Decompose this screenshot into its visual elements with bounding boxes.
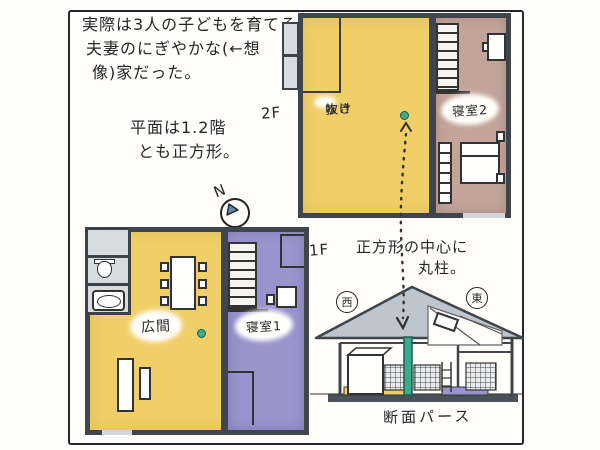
round-column-dot-1f [197, 329, 206, 338]
intro-note-line3: 像)家だった。 [92, 61, 297, 85]
closet-1f [280, 234, 304, 268]
floor-plan-1f: 広間 寝室1 [85, 227, 309, 435]
floor1-label: 1F [308, 238, 330, 262]
lattice-screen [384, 365, 404, 390]
column-pointer-arrow [380, 106, 432, 342]
sketch-page: 実際は3人の子どもを育てる 夫妻のにぎやかな(←想 像)家だった。 平面は1.2… [0, 0, 600, 450]
round-column [404, 337, 412, 395]
dining-chair [160, 262, 169, 272]
dining-chair [160, 279, 169, 289]
stairs-1f [228, 242, 257, 309]
void-label: 吹き 抜け [318, 100, 332, 105]
wall-1f [221, 232, 228, 430]
north-letter: N [211, 181, 228, 202]
floor2-label: 2F [260, 101, 282, 125]
section-caption: 断面パース [383, 405, 473, 429]
side-table-a [496, 131, 505, 142]
side-table-b [496, 173, 505, 184]
bathtub-oval [97, 295, 121, 308]
bathroom-block [85, 227, 131, 315]
bathtub-icon [92, 290, 125, 311]
lattice-screen [414, 365, 440, 390]
bath-divider-2 [88, 283, 128, 286]
stairs-wall-1f [228, 309, 268, 312]
desk-chair-1f [266, 294, 275, 305]
cabinet-top [348, 348, 391, 355]
desk-2f [487, 33, 506, 61]
dining-table [170, 256, 196, 310]
intro-note-line2: 夫妻のにぎやかな(←想 [86, 37, 297, 61]
hall-label: 広間 [133, 313, 178, 339]
north-arrow-icon [220, 198, 250, 228]
plan-shape-note-line2: とも正方形。 [138, 140, 240, 164]
lattice-screen [466, 363, 496, 390]
balcony-2f [282, 22, 299, 90]
door-1f [102, 430, 132, 435]
dining-chair [198, 279, 207, 289]
door-2f [463, 213, 505, 218]
toilet-icon [97, 261, 112, 278]
bed-pillow-line [462, 155, 498, 157]
balcony-divider [284, 54, 297, 57]
intro-note-line1: 実際は3人の子どもを育てる [82, 13, 297, 37]
void-label-line2: 抜け [325, 101, 353, 117]
bath-divider-1 [88, 255, 128, 258]
bed-2f [460, 142, 500, 184]
stairs-2f [436, 23, 459, 91]
dining-chair [198, 262, 207, 272]
cabinet [348, 355, 383, 394]
desk-1f [276, 286, 297, 308]
void-railing [303, 18, 341, 93]
shelf-2f [438, 142, 452, 204]
dining-chair [160, 296, 169, 306]
inner-wall-1f [228, 371, 254, 425]
intro-note: 実際は3人の子どもを育てる 夫妻のにぎやかな(←想 像)家だった。 [82, 13, 297, 85]
plan-shape-note-line1: 平面は1.2階 [130, 116, 240, 140]
plan-shape-note: 平面は1.2階 とも正方形。 [130, 116, 240, 164]
sofa-b [139, 367, 151, 400]
dining-chair [198, 296, 207, 306]
desk-chair-2f [482, 42, 489, 52]
sofa-a [117, 358, 134, 412]
stairs-wall-2f [436, 91, 470, 94]
